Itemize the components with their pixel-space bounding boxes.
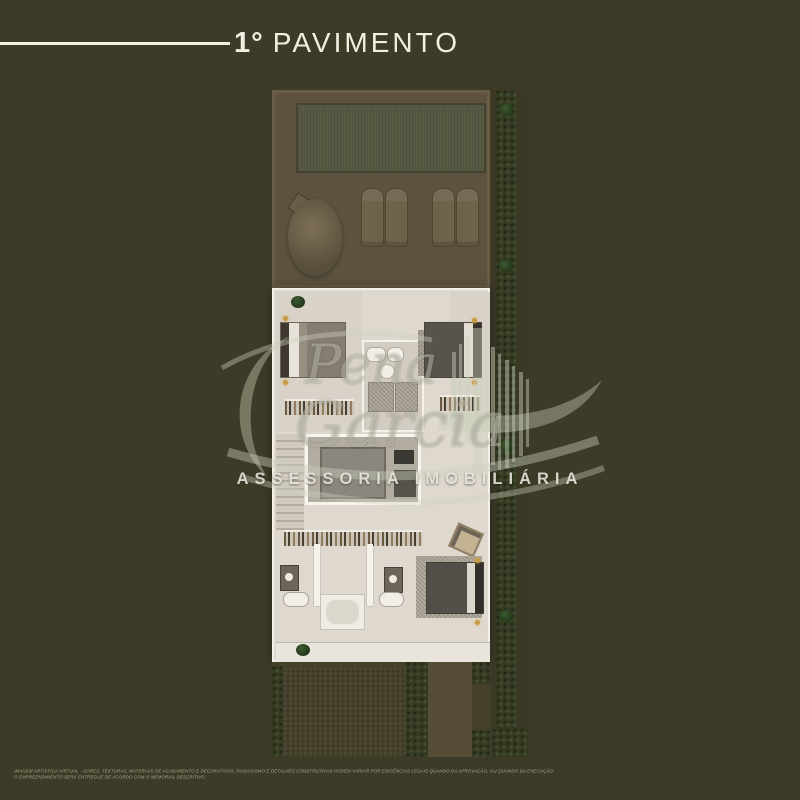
garden-lawn	[282, 668, 406, 757]
lamp-icon	[475, 558, 480, 563]
vanity-sink	[384, 567, 403, 593]
garden-hedge	[472, 730, 490, 757]
wardrobe-upper-left	[285, 399, 354, 415]
garden-hedge	[472, 662, 490, 684]
toilet-icon	[379, 592, 404, 607]
front-garden	[272, 662, 490, 757]
title-rule	[0, 42, 230, 45]
building-interior	[272, 288, 490, 662]
toilet-icon	[283, 592, 309, 607]
sofa-below	[394, 470, 416, 497]
bed-lower-right	[426, 562, 484, 614]
disclaimer-line-2: O EMPREENDIMENTO SERÁ ENTREGUE DE ACORDO…	[14, 775, 554, 781]
floor-plan	[270, 88, 528, 760]
sink-icon	[366, 347, 386, 362]
shower-stall	[368, 382, 394, 412]
central-bathroom-block	[362, 340, 424, 432]
plant-icon	[296, 644, 310, 656]
living-room-rug-below	[320, 447, 386, 499]
wall	[367, 544, 373, 606]
sink-icon	[387, 347, 404, 362]
pool-lawn-panel	[296, 103, 486, 173]
plant-icon	[500, 440, 514, 452]
garden-hedge	[406, 662, 428, 757]
side-yard	[492, 90, 528, 757]
lamp-icon	[472, 318, 477, 323]
bathtub	[320, 594, 365, 630]
staircase	[276, 434, 304, 530]
lamp-icon	[472, 380, 477, 385]
side-hedge	[496, 90, 516, 757]
plant-icon	[291, 296, 305, 308]
vanity-sink	[280, 565, 299, 591]
plant-icon	[499, 260, 513, 272]
sun-lounger	[456, 188, 479, 247]
armchair	[448, 522, 484, 557]
lamp-icon	[283, 380, 288, 385]
page-title: 1° PAVIMENTO	[234, 27, 460, 60]
page: 1° PAVIMENTO	[0, 0, 800, 800]
parasol	[288, 199, 342, 276]
bed-upper-left	[280, 322, 346, 378]
bed-upper-right	[424, 322, 482, 378]
terrace-deck	[272, 90, 490, 288]
disclaimer: IMAGEM ARTÍSTICA VIRTUAL - CORES, TEXTUR…	[14, 769, 554, 781]
shower-stall	[395, 382, 418, 412]
wardrobe-upper-right	[440, 395, 480, 411]
corridor-wardrobe	[284, 530, 422, 546]
tv-furniture-below	[394, 450, 414, 464]
sun-lounger	[361, 188, 384, 247]
plant-icon	[500, 104, 514, 116]
sun-lounger	[432, 188, 455, 247]
lamp-icon	[475, 620, 480, 625]
toilet-icon	[379, 364, 395, 379]
void-over-living-room	[305, 434, 421, 505]
lamp-icon	[283, 316, 288, 321]
garden-path	[428, 662, 472, 757]
sun-lounger	[385, 188, 408, 247]
title-word: PAVIMENTO	[273, 27, 460, 59]
rear-hedge-block	[492, 728, 528, 757]
title-block: 1° PAVIMENTO	[0, 26, 460, 60]
title-number: 1°	[234, 27, 264, 60]
plant-icon	[499, 610, 513, 622]
garden-hedge	[272, 666, 282, 757]
